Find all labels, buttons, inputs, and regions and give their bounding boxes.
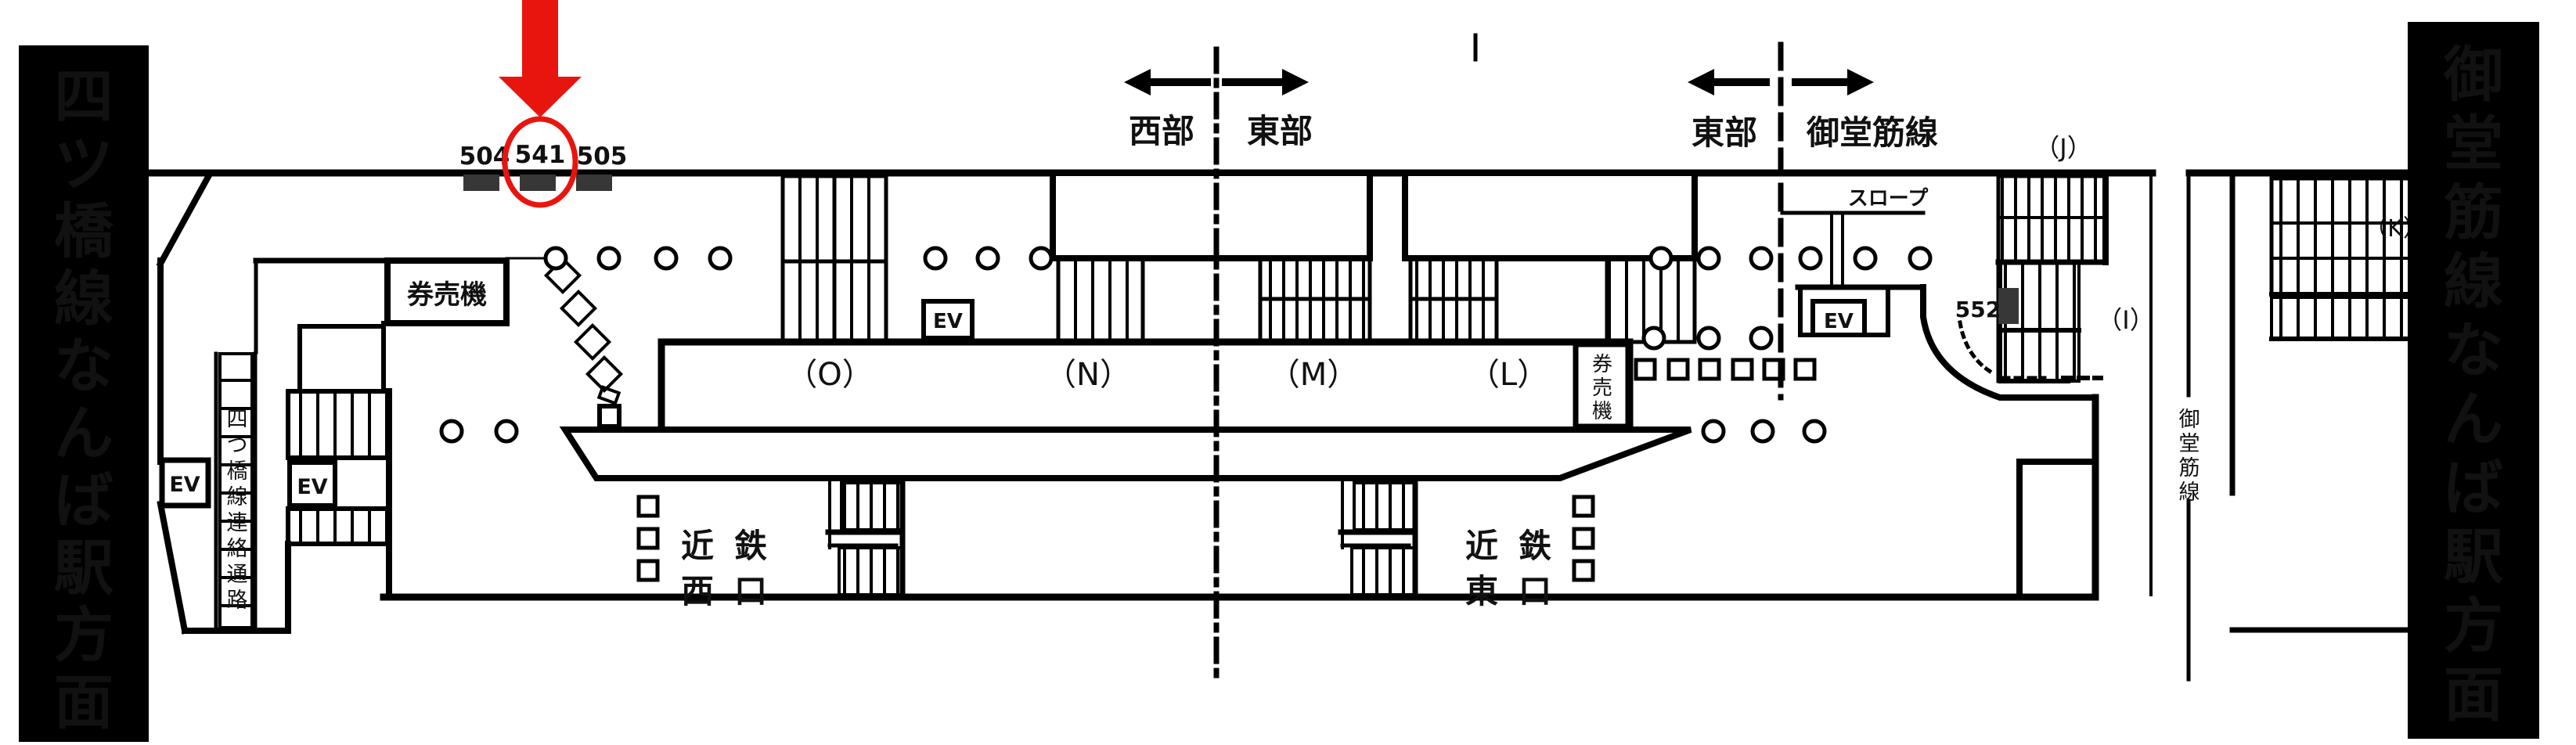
section-l-label: （L）: [1468, 357, 1548, 393]
ad-spot-504-label: 504: [459, 142, 510, 171]
stairs-j-label: （J）: [2034, 133, 2091, 163]
slope-label: スロープ: [1848, 187, 1929, 211]
platform-lower-strip: [565, 430, 1691, 478]
zone-east-center-label: 東部: [1247, 112, 1313, 150]
stair-landing-box-east: [1405, 173, 1695, 258]
lower-stairs-west: [828, 481, 903, 597]
midosuji-track-label: 御堂筋線: [2179, 408, 2200, 505]
elevator-west-inner-label: EV: [297, 475, 327, 499]
stairs-west-upper: [288, 391, 389, 458]
banner-left-label: 四ツ橋線なんば駅方面: [54, 62, 114, 737]
east-ticket-gates-row: [1636, 360, 1814, 379]
ad-spot-505-label: 505: [577, 142, 628, 171]
banner-left: 四ツ橋線なんば駅方面: [19, 45, 149, 742]
platform: （O） （N） （M） （L） 券売機: [565, 342, 1691, 478]
stairs-west-lower: [288, 509, 389, 544]
ticket-machine-west: 券売機: [387, 261, 506, 323]
arrow-left-icon: [1688, 69, 1714, 95]
ad-spot-541-label: 541: [515, 141, 566, 169]
stairs-i-label: （I）: [2097, 305, 2154, 335]
elevator-east-label: EV: [1824, 310, 1854, 333]
ad-spot-504-marker: [463, 175, 499, 191]
highlight-arrow-icon: [499, 77, 582, 117]
station-floorplan: EV EV 四つ橋線連絡通路 券売機 （O） （N） （M） （L） 券売機: [0, 0, 2576, 745]
kintetsu-west-line2: 西口: [681, 572, 787, 610]
ad-spot-552-marker: [1998, 288, 2019, 324]
midosuji-structure: [2189, 173, 2419, 679]
elevator-center-label: EV: [933, 310, 963, 333]
kintetsu-west-line1: 近鉄: [681, 527, 787, 565]
kintetsu-east-line1: 近鉄: [1465, 527, 1572, 565]
section-m-label: （M）: [1269, 357, 1359, 393]
banner-right: 御堂筋線なんば駅方面: [2408, 22, 2539, 739]
zone-sign-east: 東部 御堂筋線: [1688, 69, 1938, 152]
kintetsu-east-line2: 東口: [1465, 572, 1572, 610]
dotted-path: [546, 259, 621, 426]
ad-spot-541-marker: [520, 175, 556, 191]
stair-landing-box-west: [1053, 173, 1370, 258]
stairs-j: [1960, 173, 2106, 381]
elevator-west-label: EV: [169, 473, 200, 497]
kintetsu-west-gate: 近鉄 西口: [639, 497, 787, 610]
kintetsu-east-gate: 近鉄 東口: [1465, 497, 1593, 610]
highlight-arrow-shaft: [522, 0, 558, 78]
platform-end-box: [600, 406, 619, 426]
arrow-right-icon: [1847, 69, 1874, 95]
yotsubashi-passage-area: EV EV 四つ橋線連絡通路: [162, 354, 389, 628]
zone-midosuji-label: 御堂筋線: [1806, 113, 1938, 152]
ticket-machine-west-label: 券売機: [407, 279, 487, 311]
section-n-label: （N）: [1045, 357, 1131, 393]
platform-stairs: [783, 173, 1695, 342]
section-o-label: （O）: [786, 357, 873, 393]
ad-spot-505-marker: [576, 175, 612, 191]
zone-east-label: 東部: [1692, 113, 1757, 152]
ticket-machine-east-label: 券売機: [1592, 353, 1612, 423]
arrow-left-icon: [1124, 69, 1151, 95]
lower-stairs-east: [1341, 481, 1415, 597]
banner-right-label: 御堂筋線なんば駅方面: [2443, 40, 2503, 729]
zone-west-label: 西部: [1129, 112, 1194, 150]
arrow-right-icon: [1282, 69, 1309, 95]
ad-spot-552-label: 552: [1955, 297, 2001, 322]
